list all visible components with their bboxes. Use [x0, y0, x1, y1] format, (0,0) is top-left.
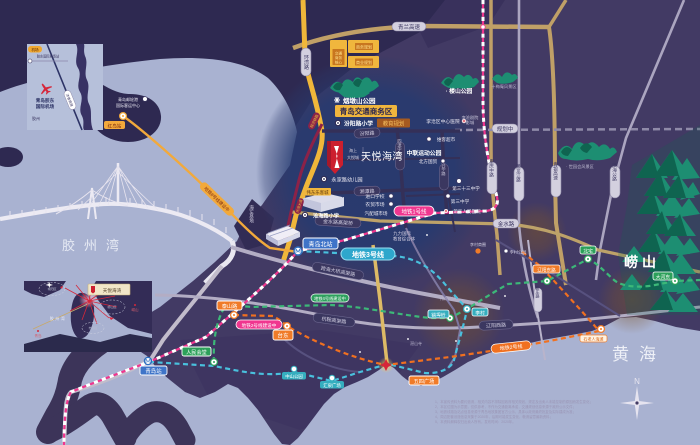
svg-text:青岛: 青岛	[35, 333, 42, 338]
svg-text:1、本宣传资料为要约邀请，相关内容不排除因政府相关规划、规定: 1、本宣传资料为要约邀请，相关内容不排除因政府相关规划、规定及出卖人未能控制的原…	[435, 399, 593, 404]
svg-text:影城: 影城	[466, 119, 475, 126]
svg-text:· 世园会风景区: · 世园会风景区	[566, 163, 594, 170]
svg-text:五四广场: 五四广场	[414, 377, 435, 385]
svg-text:商业规划: 商业规划	[356, 59, 372, 65]
svg-text:北宅: 北宅	[583, 248, 593, 255]
svg-text:十梅庵风景区: 十梅庵风景区	[491, 83, 516, 90]
svg-text:青岛胶东: 青岛胶东	[36, 97, 55, 104]
svg-text:滨海公路: 滨海公路	[612, 162, 618, 183]
svg-text:海上: 海上	[349, 147, 357, 153]
svg-text:大悦城: 大悦城	[347, 154, 359, 160]
svg-text:崂山区: 崂山区	[107, 304, 116, 309]
svg-text:永家路幼儿园: 永家路幼儿园	[331, 176, 362, 184]
svg-text:烟墩山公园: 烟墩山公园	[343, 96, 376, 105]
svg-text:黑龙江路: 黑龙江路	[516, 164, 522, 183]
svg-text:北方国贸: 北方国贸	[419, 158, 438, 165]
svg-text:李村商圈: 李村商圈	[470, 241, 486, 247]
svg-text:3、地铁线路及站点信息来源于青岛地铁集团官方公示，具体以政府: 3、地铁线路及站点信息来源于青岛地铁集团官方公示，具体以政府最终批复及实际建成为…	[435, 409, 576, 414]
svg-text:青岛交通商务区: 青岛交通商务区	[340, 106, 393, 116]
svg-text:汾阳路: 汾阳路	[359, 129, 374, 137]
svg-text:汇泉广场: 汇泉广场	[323, 382, 341, 389]
svg-text:地铁4号线建设中: 地铁4号线建设中	[314, 295, 346, 302]
svg-text:李村公园: 李村公园	[510, 249, 527, 256]
svg-text:海军基地: 海军基地	[249, 204, 255, 224]
svg-text:兴华路: 兴华路	[441, 161, 447, 176]
svg-text:错埠岭: 错埠岭	[431, 312, 446, 319]
svg-text:伟东广场: 伟东广场	[440, 295, 456, 301]
svg-text:商务: 商务	[335, 55, 343, 60]
svg-text:进口学校: 进口学校	[365, 193, 384, 200]
svg-text:胶东国际机场站: 胶东国际机场站	[37, 54, 60, 59]
svg-text:地铁1号线: 地铁1号线	[401, 208, 427, 216]
svg-text:青银高速: 青银高速	[553, 161, 559, 182]
svg-text:胶州湾: 胶州湾	[50, 315, 67, 321]
svg-text:2、本区位图为示意图，仅供参考，不作为交通距离承诺，交通规划: 2、本区位图为示意图，仅供参考，不作为交通距离承诺，交通规划信息来源于政府公示文…	[435, 404, 576, 409]
svg-text:湛山寺: 湛山寺	[410, 340, 422, 346]
svg-text:市南区: 市南区	[88, 325, 97, 330]
svg-text:5、本资料解释权归出卖人所有。发布时间：2020年。: 5、本资料解释权归出卖人所有。发布时间：2020年。	[435, 419, 516, 424]
svg-text:黄海: 黄海	[612, 345, 666, 364]
svg-text:天悦海湾: 天悦海湾	[103, 287, 122, 294]
svg-text:胶州湾: 胶州湾	[62, 238, 128, 253]
svg-text:汾阳路小学: 汾阳路小学	[344, 120, 373, 128]
svg-text:重庆中路: 重庆中路	[489, 158, 495, 179]
svg-text:大河东: 大河东	[656, 274, 671, 281]
svg-text:红岛站: 红岛站	[108, 123, 122, 130]
svg-text:城阳区: 城阳区	[47, 286, 56, 291]
svg-text:地铁3号线: 地铁3号线	[352, 250, 384, 259]
svg-text:石老人海滩: 石老人海滩	[584, 336, 604, 342]
svg-text:夏庄路: 夏庄路	[536, 285, 541, 299]
svg-text:胶州: 胶州	[32, 115, 40, 121]
svg-text:金水路: 金水路	[498, 220, 515, 228]
svg-text:第三中学: 第三中学	[451, 198, 470, 205]
svg-text:台东: 台东	[277, 332, 289, 340]
svg-text:伟东乐客城: 伟东乐客城	[307, 189, 330, 196]
svg-text:商务规划: 商务规划	[356, 44, 372, 50]
svg-text:崂山: 崂山	[132, 307, 139, 312]
svg-text:青兰高速: 青兰高速	[398, 23, 421, 31]
svg-text:泰山路: 泰山路	[222, 302, 238, 310]
svg-text:国际客运中心: 国际客运中心	[116, 102, 140, 108]
svg-text:李村: 李村	[475, 310, 485, 317]
svg-text:地铁2号线建设中: 地铁2号线建设中	[242, 322, 277, 329]
svg-text:辽阳西路: 辽阳西路	[486, 321, 506, 329]
svg-text:辽阳东路: 辽阳东路	[537, 267, 556, 274]
svg-text:机场: 机场	[31, 47, 39, 52]
svg-text:中联运动公园: 中联运动公园	[407, 149, 442, 157]
svg-text:天悦海湾: 天悦海湾	[361, 150, 403, 163]
svg-text:青岛站: 青岛站	[145, 367, 162, 375]
svg-text:环湾路: 环湾路	[303, 55, 309, 71]
svg-text:教育综合体: 教育综合体	[393, 236, 416, 243]
svg-text:第三人民医院: 第三人民医院	[453, 208, 481, 215]
svg-text:青岛北站: 青岛北站	[308, 241, 332, 249]
svg-text:李沧区中心医院: 李沧区中心医院	[426, 118, 460, 125]
svg-text:中山公园: 中山公园	[285, 373, 303, 380]
svg-text:崂山: 崂山	[624, 254, 660, 270]
svg-text:农贸市场: 农贸市场	[365, 201, 384, 208]
svg-text:汽配城市场: 汽配城市场	[365, 210, 388, 217]
svg-text:N: N	[634, 377, 640, 386]
svg-text:第三十三中学: 第三十三中学	[452, 185, 480, 192]
svg-text:人民会堂: 人民会堂	[186, 348, 207, 356]
svg-text:交通: 交通	[335, 51, 343, 56]
svg-text:沧海路小学: 沧海路小学	[313, 212, 339, 220]
svg-text:教育规划: 教育规划	[383, 120, 405, 128]
svg-text:青岛邮轮港: 青岛邮轮港	[118, 96, 138, 102]
svg-text:维客超市: 维客超市	[437, 136, 456, 143]
svg-text:· 楼山公园: · 楼山公园	[446, 87, 473, 95]
svg-text:国际机场: 国际机场	[36, 103, 55, 110]
svg-text:核心: 核心	[335, 60, 343, 65]
svg-text:4、周边配套设施信息采集于2020年，后期可能发生变化，敬请: 4、周边配套设施信息采集于2020年，后期可能发生变化，敬请留意最新资料；	[435, 414, 553, 419]
svg-text:规划中: 规划中	[497, 125, 514, 133]
